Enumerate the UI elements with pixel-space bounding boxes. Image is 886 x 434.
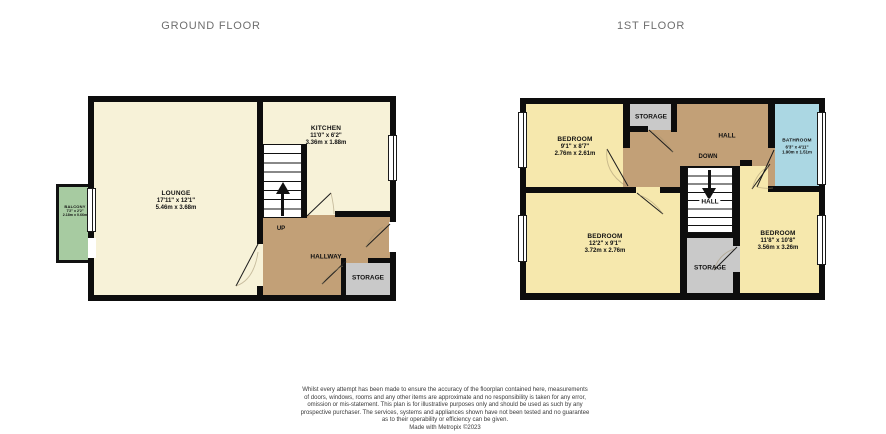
lounge-doorway <box>257 244 263 286</box>
down-arrow-shaft <box>708 170 711 188</box>
bathroom-bottom-wall <box>768 186 819 192</box>
storage-top-bottom-wall <box>626 126 648 132</box>
storage-top-label: STORAGE <box>635 114 667 121</box>
lounge-size-metric: 5.46m x 3.68m <box>156 205 197 212</box>
disclaimer-line: prospective purchaser. The services, sys… <box>273 410 617 418</box>
disclaimer: Whilst every attempt has been made to en… <box>273 387 617 433</box>
ground-floor-title: GROUND FLOOR <box>161 20 260 32</box>
storage-label: STORAGE <box>352 275 384 282</box>
kitchen-label: KITCHEN 11'0" x 6'2" 3.36m x 1.88m <box>306 125 347 147</box>
bedroom-front-window <box>518 112 527 168</box>
bathroom-left-wall <box>768 104 775 148</box>
bathroom-doorway <box>768 148 775 186</box>
disclaimer-credit: Made with Metropix ©2023 <box>273 425 617 433</box>
bedroom-rear-name: BEDROOM <box>585 233 626 241</box>
bedroom-front-name: BEDROOM <box>555 136 596 144</box>
kitchen-size-imperial: 11'0" x 6'2" <box>306 133 347 140</box>
lounge-window <box>87 188 96 232</box>
lounge-name: LOUNGE <box>156 190 197 198</box>
bedroom-front-size-imperial: 9'1" x 8'7" <box>555 144 596 151</box>
up-arrow-head <box>276 182 290 194</box>
kitchen-name: KITCHEN <box>306 125 347 133</box>
bedroom-front-size-metric: 2.76m x 2.61m <box>555 151 596 158</box>
storage-top-right-wall <box>671 104 677 132</box>
bathroom-label: BATHROOM 6'3" x 4'11" 1.90m x 1.51m <box>782 139 812 156</box>
hallway-label: HALLWAY <box>310 254 341 261</box>
bedroom-rear-size-imperial: 12'2" x 9'1" <box>585 241 626 248</box>
up-label: UP <box>277 226 285 232</box>
bedroom-main-label: BEDROOM 11'8" x 10'8" 3.56m x 3.26m <box>758 230 799 252</box>
storage-bottom-label: STORAGE <box>694 265 726 272</box>
balcony-size-metric: 2.18m x 0.66m <box>63 214 87 218</box>
bedroom-rear-size-metric: 3.72m x 2.76m <box>585 248 626 255</box>
bedroom-main-window <box>817 215 826 265</box>
hall-label: HALL <box>718 133 735 140</box>
bedroom-main-window-pane <box>822 216 823 264</box>
bedroom-front-doorway <box>623 148 630 187</box>
stair-side-wall <box>302 144 307 218</box>
lounge-divider-wall-stub <box>257 286 263 295</box>
kitchen-size-metric: 3.36m x 1.88m <box>306 140 347 147</box>
storage-bottom-doorway <box>733 246 740 272</box>
bedroom-main-size-imperial: 11'8" x 10'8" <box>758 238 799 245</box>
bathroom-size-metric: 1.90m x 1.51m <box>782 150 812 155</box>
bathroom-window-pane <box>822 113 823 184</box>
disclaimer-line: of doors, windows, rooms and any other i… <box>273 395 617 403</box>
stairwell-left-wall <box>680 167 687 293</box>
bedroom-main-size-metric: 3.56m x 3.26m <box>758 245 799 252</box>
bedroom-rear-label: BEDROOM 12'2" x 9'1" 3.72m x 2.76m <box>585 233 626 255</box>
lounge-label: LOUNGE 17'11" x 12'1" 5.46m x 3.68m <box>156 190 197 212</box>
bedroom-front-label: BEDROOM 9'1" x 8'7" 2.76m x 2.61m <box>555 136 596 158</box>
bathroom-window <box>817 112 826 185</box>
bedroom-rear-window <box>518 215 527 262</box>
balcony-door-opening <box>88 238 96 258</box>
stairwell-right-wall-lower <box>733 272 740 293</box>
kitchen-window-pane <box>393 136 394 180</box>
bedrooms-divider-wall-left <box>526 187 636 193</box>
disclaimer-line: Whilst every attempt has been made to en… <box>273 387 617 395</box>
bedroom-rear-doorway <box>636 187 660 193</box>
hall-room-lower <box>630 166 680 187</box>
stairwell-right-wall-upper <box>733 167 740 246</box>
kitchen-hallway-wall <box>335 211 390 217</box>
hall-bedroom-main-wall <box>740 160 752 166</box>
bedroom-front-window-pane <box>523 113 524 167</box>
disclaimer-line: as to their operability or efficiency ca… <box>273 417 617 425</box>
balcony-label: BALCONY 7'2" x 2'2" 2.18m x 0.66m <box>63 204 87 218</box>
disclaimer-line: omission or mis-statement. This plan is … <box>273 402 617 410</box>
landing-hall-label: HALL <box>699 199 720 206</box>
front-door-opening <box>389 222 396 252</box>
bedroom-main-name: BEDROOM <box>758 230 799 238</box>
lounge-window-pane <box>92 189 93 231</box>
lounge-size-imperial: 17'11" x 12'1" <box>156 198 197 205</box>
up-arrow-shaft <box>281 194 284 216</box>
down-label: DOWN <box>699 154 718 160</box>
kitchen-window <box>388 135 397 181</box>
first-floor-title: 1ST FLOOR <box>617 20 685 32</box>
bedroom-rear-window-pane <box>523 216 524 261</box>
